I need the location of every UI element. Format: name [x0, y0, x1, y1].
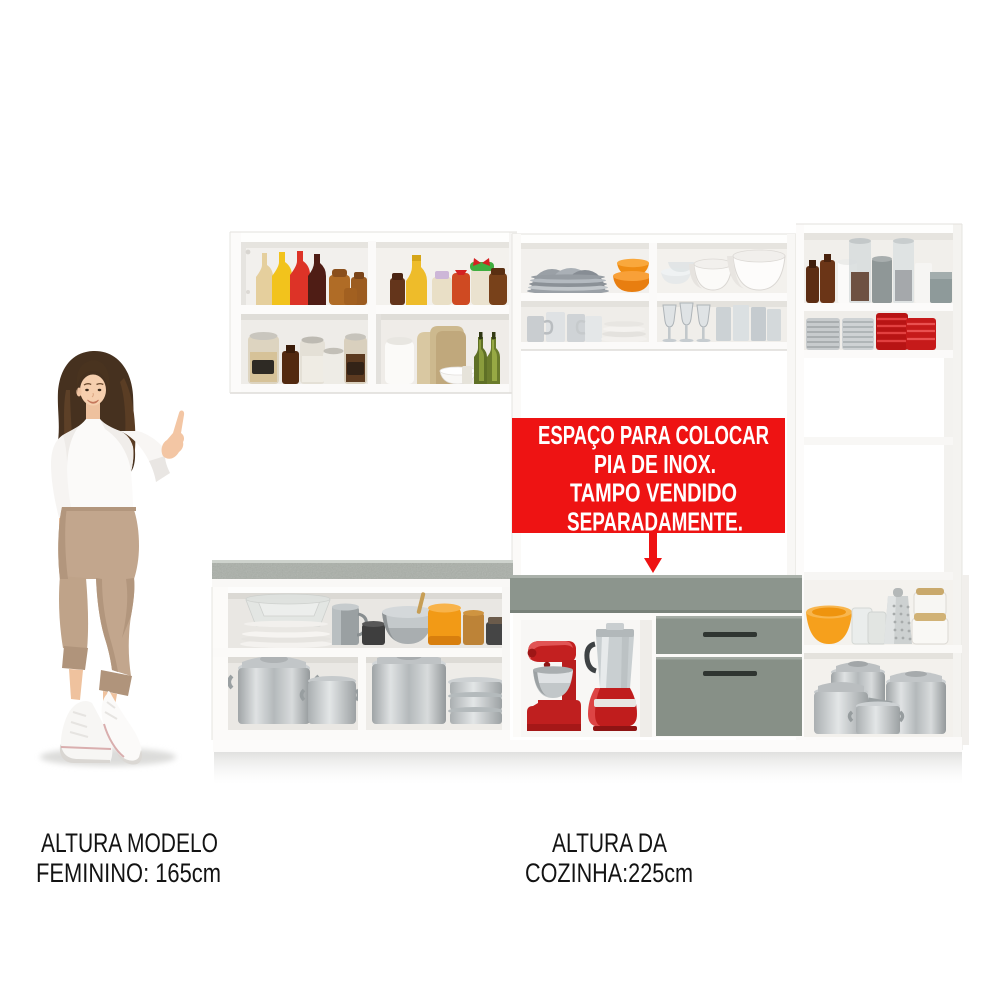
svg-text:ALTURA MODELO: ALTURA MODELO [41, 828, 218, 858]
svg-text:FEMININO: 165cm: FEMININO: 165cm [36, 858, 221, 888]
svg-text:ALTURA DA: ALTURA DA [552, 828, 667, 858]
svg-text:ESPAÇO PARA COLOCAR: ESPAÇO PARA COLOCAR [538, 420, 769, 450]
svg-text:PIA DE INOX.: PIA DE INOX. [594, 449, 716, 479]
svg-text:COZINHA:225cm: COZINHA:225cm [525, 858, 693, 888]
svg-text:SEPARADAMENTE.: SEPARADAMENTE. [567, 507, 743, 537]
svg-text:TAMPO VENDIDO: TAMPO VENDIDO [570, 478, 737, 508]
